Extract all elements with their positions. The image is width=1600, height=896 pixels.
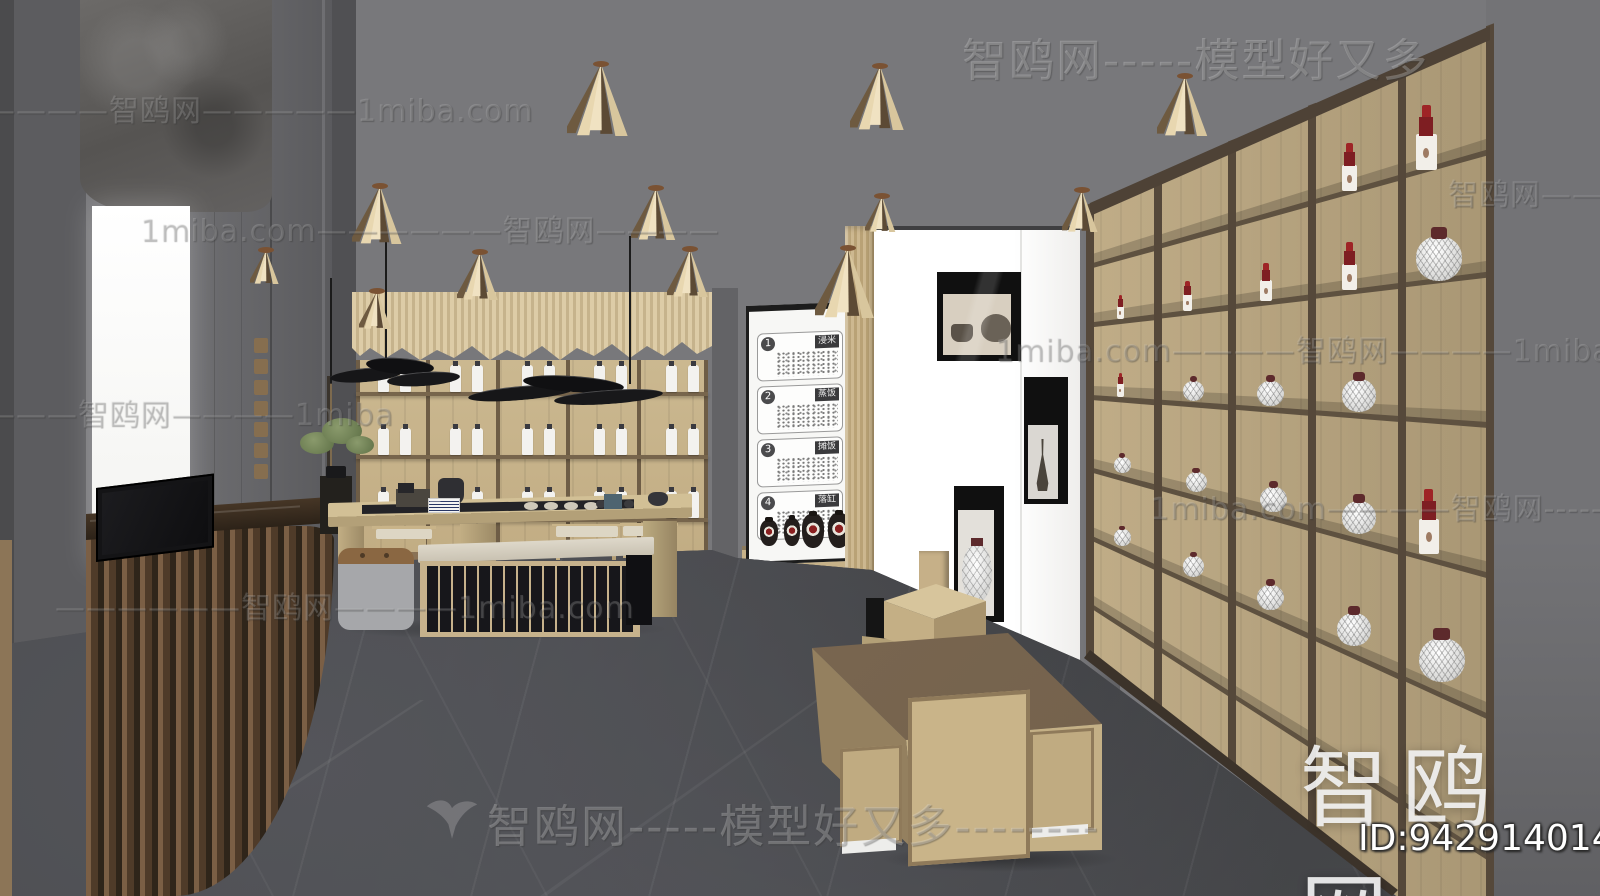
wine-bottle xyxy=(1342,143,1357,191)
panel-label: 蒸饭 xyxy=(815,387,839,401)
niche-jar-rim xyxy=(971,538,983,546)
pottery-jar xyxy=(784,518,800,546)
shelf-bottle xyxy=(594,428,605,455)
panel-number-badge: 1 xyxy=(761,337,775,352)
porcelain-jar xyxy=(1257,375,1284,406)
jar-body xyxy=(1419,638,1465,682)
tea-bowl xyxy=(564,502,578,510)
cone-pendant-light xyxy=(865,196,899,232)
watermark-line: 1miba.com——————智鸥网———— xyxy=(140,206,720,250)
wine-bottle xyxy=(1183,281,1192,311)
wine-bottle xyxy=(1117,373,1125,397)
bottle-cap xyxy=(1119,373,1122,377)
pottery-jar xyxy=(760,520,778,546)
store-interior-render: 1浸米52蒸饭63摊饭74落缸8 智鸥网-----模型好又多————智鸥网———… xyxy=(0,0,1600,896)
bottle-shoulder xyxy=(1344,152,1355,166)
jar-body xyxy=(1114,529,1131,545)
jar-rim xyxy=(1190,376,1198,381)
shelf-bottle xyxy=(472,428,483,455)
wavy-pendant-lamp xyxy=(468,376,663,420)
bottle-shoulder xyxy=(1262,270,1270,281)
wine-bottle xyxy=(1416,105,1436,170)
jar-rim xyxy=(1266,375,1276,382)
shelf-bottle xyxy=(666,365,677,392)
bonsai-foliage xyxy=(346,436,374,454)
bottle-cap xyxy=(547,424,552,429)
panel-label: 摊饭 xyxy=(815,440,839,454)
watermark-top-center: 智鸥网-----模型好又多 xyxy=(962,24,1429,89)
cone-pendant-light xyxy=(250,250,282,284)
bottle-cap xyxy=(619,424,624,429)
bottle-cap xyxy=(525,487,530,492)
cone-pendant-light xyxy=(1062,190,1102,232)
bottle-logo-dot xyxy=(1426,532,1432,542)
bottle-logo-dot xyxy=(1186,301,1189,306)
teal-caddy xyxy=(604,494,622,509)
watermark-line: 1miba.com————智鸥网-------- xyxy=(1150,484,1600,528)
bottle-cap xyxy=(691,424,696,429)
bottle-shoulder xyxy=(1184,286,1191,295)
display-niche xyxy=(1024,377,1068,504)
bottle-cap xyxy=(619,487,624,492)
bottle-cap xyxy=(525,361,530,366)
sign-character xyxy=(254,359,268,374)
shelf-bottle xyxy=(688,365,699,392)
panel-label: 落缸 xyxy=(815,493,839,507)
bottle-cap xyxy=(669,361,674,366)
bottle-cap xyxy=(597,361,602,366)
wine-bottle xyxy=(1260,263,1272,300)
jar-lid xyxy=(765,517,772,522)
bottle-cap xyxy=(525,424,530,429)
jar-body xyxy=(1257,585,1284,611)
bottle-shoulder xyxy=(1419,117,1433,136)
jar-body xyxy=(1183,381,1204,401)
jar-body xyxy=(1114,457,1131,473)
bottle-cap xyxy=(1422,105,1431,117)
jar-rim xyxy=(1433,628,1450,640)
jar-lid xyxy=(809,511,818,516)
monitor-screen-glare xyxy=(102,480,208,555)
bottle-logo-dot xyxy=(1347,274,1352,282)
watermark-line: 智鸥网——— xyxy=(1448,170,1600,214)
bottle-logo-dot xyxy=(1264,288,1268,294)
bottle-cap xyxy=(547,361,552,366)
bottle-cap xyxy=(669,487,674,492)
bottle-cap xyxy=(691,487,696,492)
bottle-cap xyxy=(475,361,480,366)
teapot xyxy=(648,492,668,506)
porcelain-jar xyxy=(1342,372,1376,412)
jar-rim xyxy=(1431,227,1448,239)
porcelain-jar xyxy=(1183,376,1204,401)
jar-body xyxy=(1416,236,1462,280)
porcelain-jar xyxy=(1337,606,1371,646)
bottle-cap xyxy=(547,487,552,492)
jar-body xyxy=(1337,613,1371,646)
panel-number-badge: 4 xyxy=(761,496,775,511)
bottle-cap xyxy=(691,361,696,366)
slat-canopy xyxy=(352,292,712,366)
bottle-cap xyxy=(403,424,408,429)
jar-body xyxy=(1257,381,1284,407)
light-mount xyxy=(872,63,888,69)
porcelain-jar xyxy=(1419,628,1465,682)
tea-cup xyxy=(624,500,634,508)
bottle-shoulder xyxy=(1118,377,1123,384)
bottle-cap xyxy=(475,424,480,429)
model-id: ID:942914014 xyxy=(1358,818,1600,859)
pendant-rod xyxy=(629,236,631,384)
chair-cushion xyxy=(556,526,618,537)
light-mount xyxy=(593,61,609,67)
panel-illustration xyxy=(776,349,838,376)
cone-pendant-light xyxy=(850,66,911,130)
cone-pendant-light xyxy=(359,291,395,329)
shelf-bottle xyxy=(616,428,627,455)
pouf-button xyxy=(384,553,389,558)
porcelain-jar xyxy=(1114,526,1131,546)
shelf-board xyxy=(356,455,708,459)
wall-strip xyxy=(712,288,738,562)
panel-illustration xyxy=(776,455,838,482)
shelf-bottle xyxy=(666,428,677,455)
watermark-bottom-text: 智鸥网-----模型好又多-------- xyxy=(487,790,1100,855)
chair-cushion xyxy=(376,529,432,539)
poster-panel: 2蒸饭 xyxy=(757,383,843,434)
bottle-cap xyxy=(619,361,624,366)
shelf-bottle xyxy=(544,428,555,455)
cone-pendant-light xyxy=(567,64,635,136)
tea-bowl xyxy=(524,502,538,510)
jar-rim xyxy=(1192,468,1200,473)
watermark-line: ———智鸥网————1miba xyxy=(0,390,394,434)
porcelain-jar xyxy=(1114,453,1131,473)
bottle-cap xyxy=(1185,281,1189,286)
bottle-shoulder xyxy=(1118,299,1123,306)
light-mount xyxy=(372,183,388,189)
seagull-icon xyxy=(425,794,479,842)
watermark-bottom: 智鸥网-----模型好又多-------- xyxy=(425,790,1125,850)
wine-bottle xyxy=(1117,295,1125,319)
shelf-bottle xyxy=(400,428,411,455)
bonsai-pot xyxy=(326,466,346,478)
bottle-cap xyxy=(597,424,602,429)
shelf-bottle xyxy=(450,428,461,455)
watermark-line: 1miba.com————智鸥网————1miba.com xyxy=(995,326,1600,370)
porcelain-jar xyxy=(1416,227,1462,281)
panel-label: 浸米 xyxy=(815,334,839,348)
porcelain-jar xyxy=(1257,579,1284,610)
shelf-bottle xyxy=(522,428,533,455)
bottle-cap xyxy=(1346,143,1353,152)
cone-pendant-light xyxy=(815,248,882,318)
sign-character xyxy=(254,338,268,353)
cone-pendant-light xyxy=(667,249,713,297)
pouf-button xyxy=(360,553,365,558)
chair-rail xyxy=(552,524,622,527)
jar-rim xyxy=(1348,606,1360,615)
sign-character xyxy=(254,464,268,479)
desk-monitor xyxy=(96,474,214,562)
jar-body xyxy=(1342,379,1376,412)
light-mount xyxy=(840,245,856,251)
shelf-bottle xyxy=(688,428,699,455)
bottle-cap xyxy=(475,487,480,492)
bottle-cap xyxy=(381,487,386,492)
bottle-cap xyxy=(453,424,458,429)
watermark-line: ————智鸥网—————1miba.com xyxy=(0,86,534,130)
light-mount xyxy=(874,193,890,199)
poster-panel: 3摊饭 xyxy=(757,436,843,487)
bottle-cap xyxy=(597,487,602,492)
bottle-logo-dot xyxy=(1347,175,1352,183)
jar-lid xyxy=(789,515,795,520)
left-floor-strip xyxy=(0,540,12,896)
panel-number-badge: 3 xyxy=(761,443,775,458)
jar-rim xyxy=(1353,372,1365,381)
bottle-cap xyxy=(1346,242,1353,251)
jar-lid xyxy=(835,510,844,515)
tea-bowl xyxy=(544,502,558,510)
panel-number-badge: 2 xyxy=(761,390,775,405)
porcelain-jar xyxy=(1183,552,1204,577)
bottle-cap xyxy=(669,424,674,429)
bottle-cap xyxy=(1263,263,1268,270)
jar-rim xyxy=(1266,579,1276,586)
bottle-shoulder xyxy=(1344,251,1355,265)
tea-box-small xyxy=(398,483,414,493)
niche-jar xyxy=(962,544,992,602)
watermark-line: ——————智鸥网————1miba.com xyxy=(55,583,635,627)
jar-body xyxy=(1183,556,1204,576)
light-mount xyxy=(1074,187,1090,193)
striped-box xyxy=(428,498,460,513)
sign-character xyxy=(254,443,268,458)
poster-panel: 1浸米 xyxy=(757,330,843,381)
light-mount xyxy=(648,185,664,191)
pottery-jar xyxy=(802,514,824,548)
wine-bottle xyxy=(1342,242,1357,290)
bottle-cap xyxy=(1119,295,1122,299)
cone-pendant-light xyxy=(457,252,503,300)
chair-rail xyxy=(372,526,436,529)
panel-illustration xyxy=(776,402,838,429)
light-mount xyxy=(369,288,385,294)
site-logo: 智鸥网 xyxy=(1300,718,1600,896)
